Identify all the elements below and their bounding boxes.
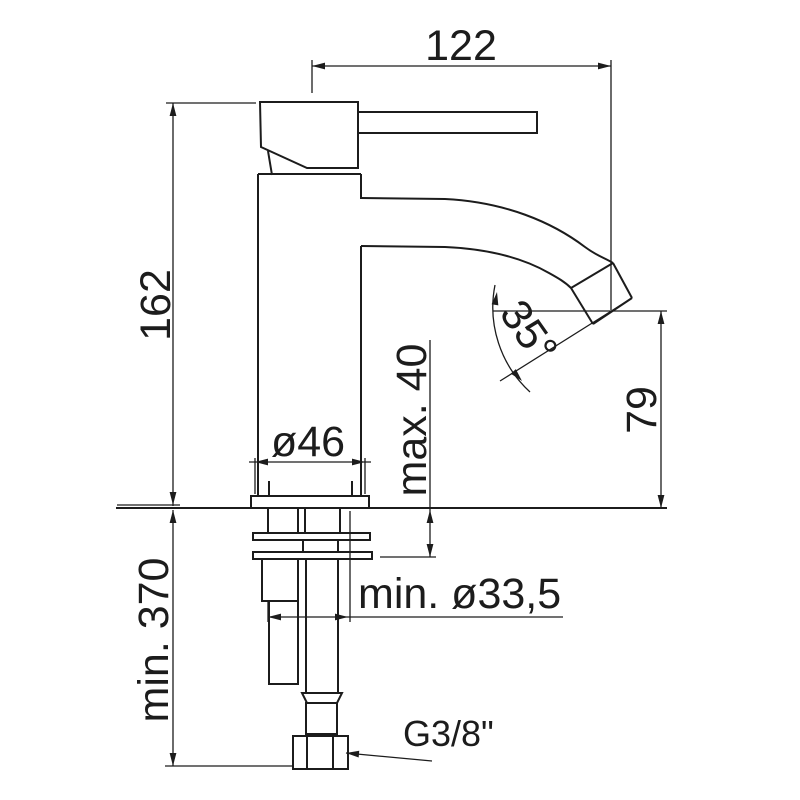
arrowhead <box>255 459 268 466</box>
technical-drawing-canvas: 122 162 ø46 max. 40 35° <box>0 0 800 800</box>
arrowhead <box>598 63 611 70</box>
dim-body-height-label: 162 <box>132 269 180 341</box>
hose-ferrule <box>306 703 337 734</box>
dim-max-deck-thickness-label: max. 40 <box>388 344 436 497</box>
dimension-max-deck-thickness: max. 40 <box>380 340 436 557</box>
mounting-plate-lower <box>253 552 372 559</box>
faucet-dimension-drawing: 122 162 ø46 max. 40 35° <box>0 0 800 800</box>
dim-spout-angle-label: 35° <box>490 292 567 373</box>
arrowhead <box>427 544 434 557</box>
arrowhead <box>170 492 177 505</box>
mounting-plate-upper <box>253 533 370 540</box>
dim-spout-reach-label: 122 <box>425 22 497 70</box>
braided-supply-hose <box>306 559 338 693</box>
dim-outlet-height-label: 79 <box>618 386 666 434</box>
hose-collar <box>302 693 342 703</box>
aerator-inner-edge <box>571 288 593 324</box>
arrowhead <box>658 311 665 324</box>
aerator-outer-edge <box>613 263 632 298</box>
dimension-body-height: 162 <box>117 103 256 506</box>
arrowhead <box>170 103 177 116</box>
label-supply-connection: G3/8" <box>346 713 494 761</box>
dimension-outlet-height: 79 <box>618 311 666 508</box>
base-flange <box>251 496 369 508</box>
arrowhead <box>170 510 177 523</box>
fixing-stud-lower <box>269 601 298 684</box>
lever-rod <box>358 112 537 133</box>
dimension-min-hole-diameter: min. ø33,5 <box>268 511 563 622</box>
handle-body <box>260 102 358 168</box>
dim-base-diameter-label: ø46 <box>271 418 345 466</box>
braided-hose-upper-block <box>303 540 338 552</box>
handle-link-line <box>268 151 272 175</box>
dim-min-clearance-below-label: min. 370 <box>130 558 178 723</box>
arrowhead <box>312 63 325 70</box>
spout-upper-edge <box>361 198 613 263</box>
connection-nut <box>293 736 348 769</box>
supply-connection-label: G3/8" <box>403 713 494 754</box>
dim-min-hole-diameter-label: min. ø33,5 <box>358 570 561 618</box>
aerator-band-line <box>571 263 613 288</box>
fixing-stud-upper <box>262 559 298 601</box>
arrowhead <box>335 614 348 621</box>
arrowhead <box>170 753 177 766</box>
arrowhead <box>658 495 665 508</box>
arrowhead <box>352 459 365 466</box>
dimension-spout-reach: 122 <box>312 22 611 310</box>
arrowhead <box>427 510 434 523</box>
spout-lower-edge <box>361 246 571 288</box>
under-deck-assembly <box>253 509 372 769</box>
